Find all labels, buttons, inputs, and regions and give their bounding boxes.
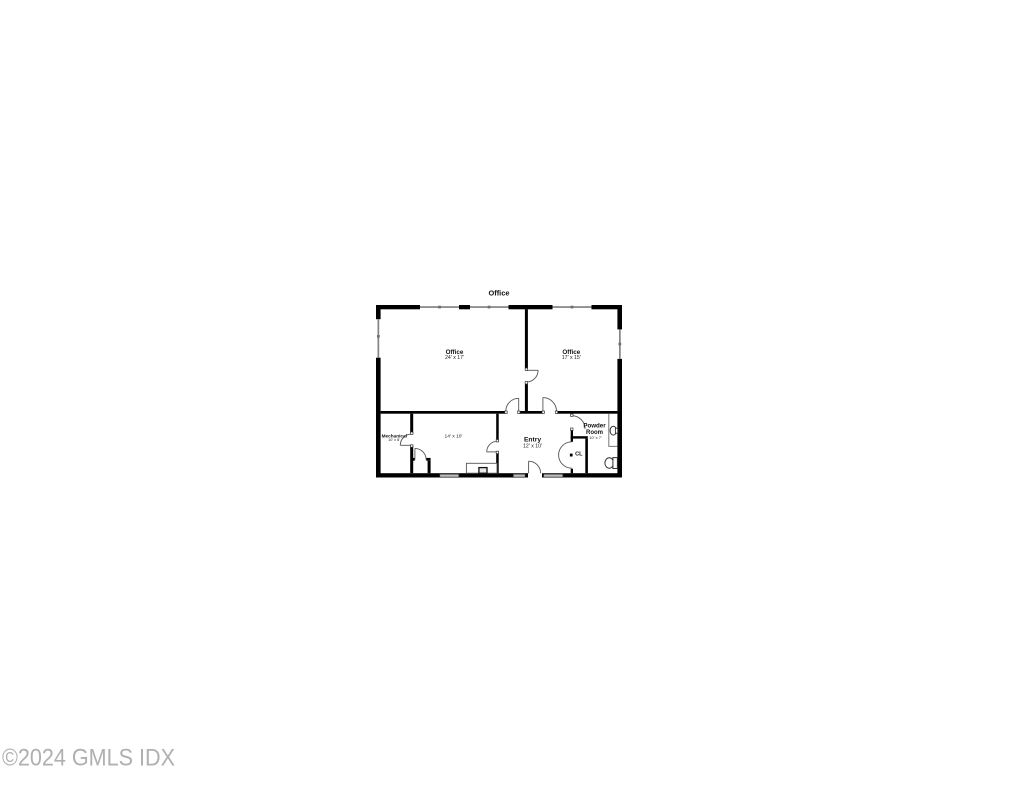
svg-text:CL: CL <box>575 452 583 458</box>
svg-text:24' x 17': 24' x 17' <box>445 355 464 361</box>
svg-text:17' x 15': 17' x 15' <box>562 355 581 361</box>
svg-text:10' x 8': 10' x 8' <box>388 438 400 442</box>
svg-text:12' x 10': 12' x 10' <box>523 444 542 450</box>
svg-text:Office: Office <box>489 289 510 298</box>
svg-text:14' x 10': 14' x 10' <box>445 433 463 439</box>
svg-text:©2024 GMLS IDX: ©2024 GMLS IDX <box>2 745 175 772</box>
svg-text:Entry: Entry <box>524 436 541 443</box>
svg-text:10' x 7': 10' x 7' <box>589 435 602 440</box>
svg-text:Powder: Powder <box>583 422 606 429</box>
